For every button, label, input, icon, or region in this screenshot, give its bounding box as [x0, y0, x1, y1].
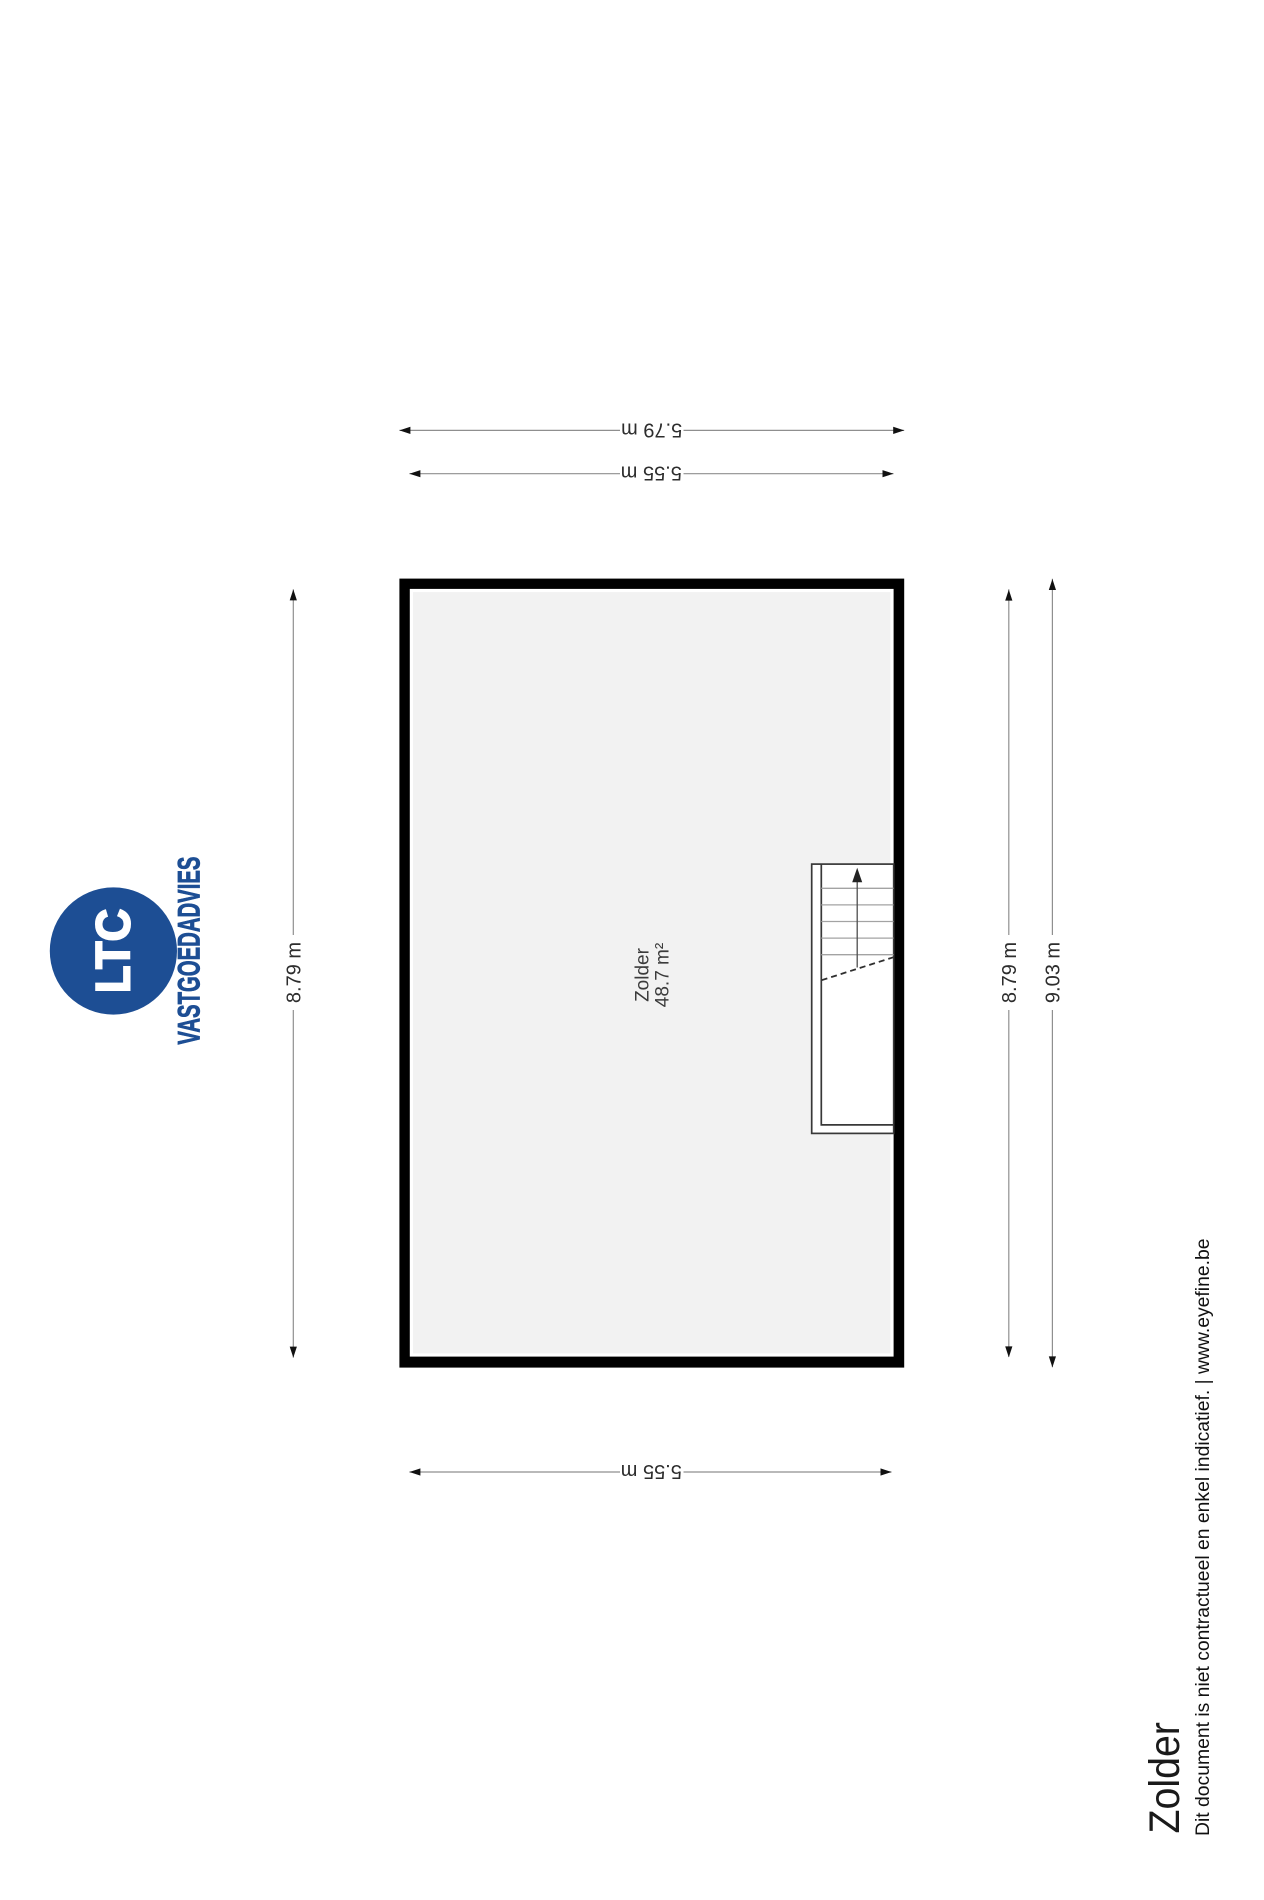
- svg-text:VASTGOEDADVIES: VASTGOEDADVIES: [171, 857, 207, 1045]
- svg-text:48.7 m²: 48.7 m²: [653, 943, 674, 1007]
- svg-text:Zolder: Zolder: [633, 947, 654, 1002]
- svg-text:8.79 m: 8.79 m: [999, 942, 1021, 1003]
- svg-text:5.55 m: 5.55 m: [621, 1460, 682, 1482]
- svg-text:5.79 m: 5.79 m: [621, 418, 682, 440]
- svg-text:5.55 m: 5.55 m: [621, 462, 682, 484]
- svg-text:9.03 m: 9.03 m: [1042, 942, 1064, 1003]
- svg-text:Zolder: Zolder: [1141, 1722, 1189, 1833]
- svg-text:Dit document is niet contractu: Dit document is niet contractueel en enk…: [1192, 1239, 1214, 1836]
- svg-text:LTC: LTC: [86, 909, 140, 993]
- svg-text:8.79 m: 8.79 m: [283, 942, 305, 1003]
